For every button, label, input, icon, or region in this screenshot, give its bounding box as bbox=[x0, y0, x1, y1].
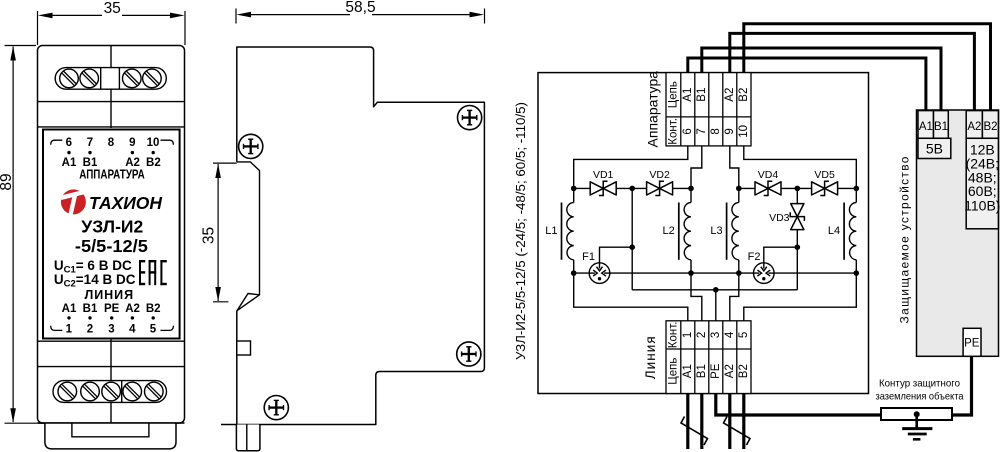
svg-text:1: 1 bbox=[66, 324, 73, 336]
svg-text:PE: PE bbox=[964, 338, 980, 350]
svg-text:5: 5 bbox=[150, 324, 157, 336]
svg-text:F2: F2 bbox=[748, 251, 761, 263]
svg-text:A1: A1 bbox=[682, 364, 694, 378]
svg-text:B1: B1 bbox=[83, 303, 98, 315]
svg-text:9: 9 bbox=[724, 128, 736, 134]
svg-text:89: 89 bbox=[0, 173, 15, 190]
svg-text:A1: A1 bbox=[62, 157, 77, 169]
svg-text:VD1: VD1 bbox=[593, 169, 614, 181]
svg-text:7: 7 bbox=[87, 137, 93, 149]
svg-text:L3: L3 bbox=[710, 225, 722, 237]
svg-text:PE: PE bbox=[104, 303, 120, 315]
svg-text:6: 6 bbox=[682, 128, 694, 134]
svg-text:УЗЛ-И2: УЗЛ-И2 bbox=[81, 217, 143, 237]
svg-text:3: 3 bbox=[710, 332, 722, 338]
svg-text:B2: B2 bbox=[738, 364, 750, 378]
svg-text:B2: B2 bbox=[146, 303, 161, 315]
svg-text:Цепь: Цепь bbox=[667, 358, 679, 385]
svg-text:A1: A1 bbox=[919, 121, 933, 133]
svg-text:ТАХИОН: ТАХИОН bbox=[89, 193, 162, 213]
svg-text:10: 10 bbox=[738, 125, 750, 138]
svg-text:L4: L4 bbox=[828, 225, 840, 237]
svg-text:A1: A1 bbox=[62, 303, 77, 315]
svg-text:5В: 5В bbox=[926, 140, 943, 156]
svg-text:8: 8 bbox=[108, 137, 115, 149]
svg-text:B1: B1 bbox=[696, 364, 708, 378]
svg-text:УЗЛ-И2-5/5-12/5 (-24/5; -48/5;: УЗЛ-И2-5/5-12/5 (-24/5; -48/5; 60/5; -11… bbox=[513, 102, 528, 360]
svg-text:Защищаемое устройство: Защищаемое устройство bbox=[898, 156, 912, 323]
svg-text:10: 10 bbox=[147, 137, 160, 149]
svg-text:B2: B2 bbox=[146, 157, 161, 169]
svg-text:B1: B1 bbox=[696, 88, 708, 102]
svg-text:Аппаратура: Аппаратура bbox=[645, 71, 661, 148]
svg-text:2: 2 bbox=[87, 324, 93, 336]
svg-text:110В): 110В) bbox=[964, 197, 1000, 213]
svg-text:VD2: VD2 bbox=[649, 169, 670, 181]
svg-text:L2: L2 bbox=[663, 225, 675, 237]
svg-text:заземления объекта: заземления объекта bbox=[876, 391, 964, 403]
svg-text:VD5: VD5 bbox=[814, 169, 835, 181]
svg-text:VD4: VD4 bbox=[758, 169, 779, 181]
svg-text:B2: B2 bbox=[738, 88, 750, 102]
svg-text:VD3: VD3 bbox=[769, 212, 790, 224]
svg-text:A1: A1 bbox=[682, 88, 694, 102]
svg-text:A2: A2 bbox=[724, 364, 736, 378]
svg-text:A2: A2 bbox=[125, 303, 140, 315]
svg-text:Цепь: Цепь bbox=[667, 81, 679, 108]
svg-text:1: 1 bbox=[682, 332, 694, 338]
svg-text:-5/5-12/5: -5/5-12/5 bbox=[75, 236, 148, 256]
svg-text:B1: B1 bbox=[934, 121, 948, 133]
svg-text:6: 6 bbox=[66, 137, 72, 149]
svg-text:58,5: 58,5 bbox=[345, 0, 375, 16]
svg-text:Конт.: Конт. bbox=[667, 322, 679, 349]
svg-text:B2: B2 bbox=[983, 121, 997, 133]
svg-text:7: 7 bbox=[696, 128, 708, 134]
svg-text:2: 2 bbox=[696, 332, 708, 338]
svg-text:35: 35 bbox=[104, 0, 121, 17]
svg-text:5: 5 bbox=[738, 332, 750, 338]
svg-text:A2: A2 bbox=[724, 88, 736, 102]
svg-text:PE: PE bbox=[710, 363, 722, 379]
svg-text:АППАРАТУРА: АППАРАТУРА bbox=[79, 168, 145, 182]
svg-text:9: 9 bbox=[129, 137, 135, 149]
svg-text:Конт.: Конт. bbox=[667, 118, 679, 145]
svg-text:4: 4 bbox=[129, 324, 136, 336]
svg-text:F1: F1 bbox=[582, 251, 595, 263]
svg-text:3: 3 bbox=[108, 324, 114, 336]
svg-text:L1: L1 bbox=[545, 225, 557, 237]
svg-text:8: 8 bbox=[710, 128, 722, 134]
svg-text:35: 35 bbox=[201, 227, 218, 244]
svg-text:ЛИНИЯ: ЛИНИЯ bbox=[85, 288, 134, 302]
svg-text:Линия: Линия bbox=[643, 336, 658, 379]
svg-text:4: 4 bbox=[724, 331, 736, 338]
svg-text:Контур защитного: Контур защитного bbox=[879, 379, 960, 390]
svg-text:A2: A2 bbox=[967, 121, 981, 133]
